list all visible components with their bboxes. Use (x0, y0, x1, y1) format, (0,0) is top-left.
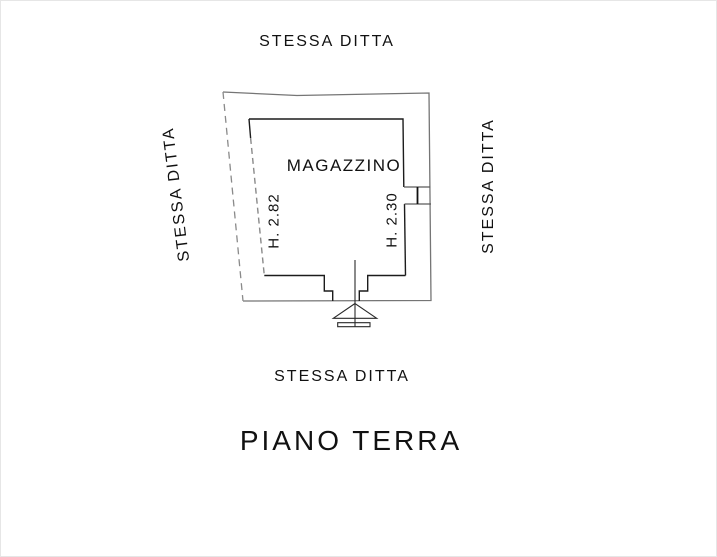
floor-title: PIANO TERRA (240, 425, 462, 457)
entrance-symbol (333, 260, 376, 327)
floorplan-drawing (1, 1, 717, 557)
label-adjacent-top: STESSA DITTA (259, 33, 395, 51)
label-adjacent-right: STESSA DITTA (480, 118, 498, 254)
room-height-right-label: H. 2.30 (384, 192, 401, 247)
window-symbol (404, 187, 431, 204)
label-adjacent-bottom: STESSA DITTA (274, 368, 410, 386)
room-name-label: MAGAZZINO (287, 156, 402, 176)
floorplan-page: STESSA DITTA STESSA DITTA STESSA DITTA S… (0, 0, 717, 557)
room-height-left-label: H. 2.82 (266, 193, 283, 248)
outer-boundary-dashed-left (223, 92, 243, 301)
entrance-step (338, 323, 370, 327)
